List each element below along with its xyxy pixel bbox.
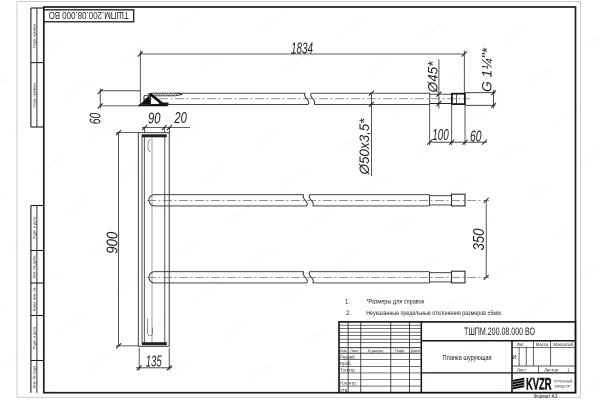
svg-text:Взам. инв. №: Взам. инв. № xyxy=(33,287,37,311)
svg-text:1834: 1834 xyxy=(291,41,313,58)
svg-text:60: 60 xyxy=(470,128,482,145)
svg-text:135: 135 xyxy=(146,354,162,371)
svg-text:Неуказанные предельные отклоне: Неуказанные предельные отклонения размер… xyxy=(366,310,502,317)
svg-text:Утв.: Утв. xyxy=(340,387,348,392)
svg-text:*Размеры для справок: *Размеры для справок xyxy=(366,299,424,306)
svg-text:Спрв. примен.: Спрв. примен. xyxy=(33,82,37,107)
svg-text:1.: 1. xyxy=(345,300,350,306)
svg-text:60: 60 xyxy=(87,113,104,125)
svg-text:90: 90 xyxy=(148,111,161,128)
svg-text:Подп.: Подп. xyxy=(395,348,406,353)
svg-text:Инв. № подл.: Инв. № подл. xyxy=(33,365,37,389)
svg-text:ЗАВОД РЭП: ЗАВОД РЭП xyxy=(555,384,571,389)
svg-text:100: 100 xyxy=(432,127,449,144)
svg-text:Масса: Масса xyxy=(536,342,549,347)
svg-text:Лит.: Лит. xyxy=(517,342,525,347)
svg-text:Т.контр.: Т.контр. xyxy=(340,368,356,373)
svg-text:ТШПМ.200.08.000 ВО: ТШПМ.200.08.000 ВО xyxy=(464,326,535,338)
svg-text:G 1¼"*: G 1¼"* xyxy=(479,47,495,92)
svg-text:350: 350 xyxy=(471,228,488,250)
svg-text:Изм.: Изм. xyxy=(340,348,348,353)
svg-text:KVZR: KVZR xyxy=(526,376,552,394)
svg-text:Разраб.: Разраб. xyxy=(340,354,356,359)
svg-text:Подп. и дата: Подп. и дата xyxy=(33,326,37,349)
svg-text:Дата: Дата xyxy=(411,348,421,353)
svg-text:Лист: Лист xyxy=(350,348,359,353)
svg-text:Проб.: Проб. xyxy=(340,361,352,366)
svg-text:Листов: Листов xyxy=(544,367,558,372)
svg-text:Перв. примен.: Перв. примен. xyxy=(33,23,37,48)
svg-text:900: 900 xyxy=(105,232,122,254)
svg-text:N докум.: N докум. xyxy=(368,348,384,353)
svg-text:Масштаб: Масштаб xyxy=(553,342,574,347)
svg-text:2.: 2. xyxy=(346,311,351,317)
svg-text:Планка шурующая: Планка шурующая xyxy=(443,353,492,362)
svg-text:Инв. № дубл.: Инв. № дубл. xyxy=(33,255,37,279)
svg-text:И: И xyxy=(512,355,516,361)
svg-text:ТШПМ.200.08.000 ВО: ТШПМ.200.08.000 ВО xyxy=(49,9,129,20)
svg-text:Лист: Лист xyxy=(517,367,526,372)
svg-text:20: 20 xyxy=(174,110,187,127)
svg-text:Н.контр.: Н.контр. xyxy=(340,381,357,386)
svg-text:Формат А3: Формат А3 xyxy=(534,394,558,400)
svg-text:Ø45*: Ø45* xyxy=(424,61,440,93)
svg-text:Подп. и дата: Подп. и дата xyxy=(33,216,37,239)
svg-text:Ø50x3,5*: Ø50x3,5* xyxy=(356,118,372,175)
